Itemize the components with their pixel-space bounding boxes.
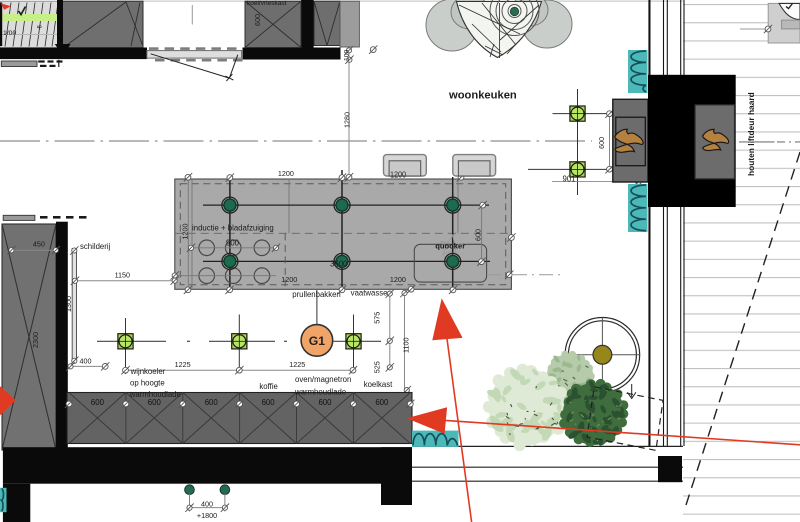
svg-text:vaatwasser: vaatwasser	[351, 289, 391, 298]
svg-text:1225: 1225	[175, 360, 191, 369]
svg-text:400: 400	[80, 357, 92, 366]
svg-text:1200: 1200	[278, 169, 294, 178]
svg-text:koffie: koffie	[259, 382, 278, 391]
svg-text:warmhoudlade: warmhoudlade	[294, 387, 346, 396]
svg-text:inductie + bladafzuiging: inductie + bladafzuiging	[192, 224, 274, 233]
svg-text:3600: 3600	[330, 259, 348, 268]
svg-text:1300: 1300	[64, 296, 73, 312]
svg-text:1200: 1200	[281, 275, 297, 284]
svg-text:op hoogte: op hoogte	[130, 378, 165, 387]
svg-text:G1: G1	[309, 334, 325, 348]
svg-text:600: 600	[318, 398, 332, 407]
svg-text:1/00: 1/00	[3, 30, 16, 37]
svg-text:1100: 1100	[402, 338, 411, 353]
svg-text:oven/magnetron: oven/magnetron	[295, 375, 351, 384]
svg-text:600: 600	[597, 137, 606, 149]
svg-text:901: 901	[563, 174, 576, 183]
svg-text:quooker: quooker	[435, 242, 465, 251]
svg-text:600: 600	[375, 398, 389, 407]
svg-text:575: 575	[373, 312, 382, 324]
svg-text:wijnkoeler: wijnkoeler	[130, 367, 166, 376]
svg-text:100: 100	[344, 49, 351, 61]
svg-text:600: 600	[148, 398, 162, 407]
svg-text:2300: 2300	[31, 332, 40, 348]
svg-text:1225: 1225	[289, 360, 305, 369]
svg-text:1150: 1150	[115, 271, 130, 280]
svg-text:1280: 1280	[342, 112, 351, 128]
svg-text:600: 600	[205, 398, 219, 407]
svg-text:1200: 1200	[180, 224, 189, 240]
svg-text:525: 525	[373, 361, 382, 373]
svg-text:woonkeuken: woonkeuken	[448, 90, 517, 102]
svg-text:1200: 1200	[390, 275, 406, 284]
svg-text:koel/vrieskast: koel/vrieskast	[247, 0, 287, 7]
svg-text:600: 600	[262, 398, 276, 407]
svg-text:600: 600	[473, 229, 482, 241]
svg-text:+1800: +1800	[197, 511, 217, 520]
svg-text:schilderij: schilderij	[80, 242, 111, 251]
svg-text:houten liftdeur haard: houten liftdeur haard	[746, 92, 756, 176]
svg-text:600: 600	[253, 14, 262, 26]
svg-text:warmhoudlade: warmhoudlade	[129, 390, 181, 399]
svg-text:400: 400	[201, 499, 213, 508]
svg-text:450: 450	[33, 240, 45, 249]
svg-text:koelkast: koelkast	[364, 380, 393, 389]
svg-text:600: 600	[91, 398, 105, 407]
svg-text:1200: 1200	[390, 170, 406, 179]
svg-text:900: 900	[226, 238, 240, 247]
